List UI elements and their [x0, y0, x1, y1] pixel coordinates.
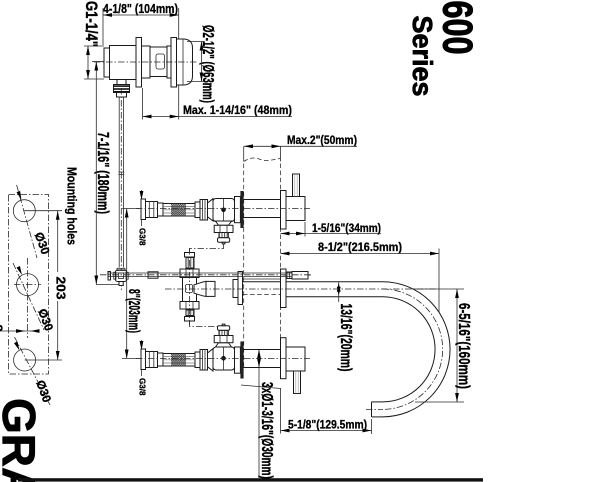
- svg-text:600: 600: [435, 1, 482, 55]
- svg-text:G3/8: G3/8: [138, 378, 148, 396]
- svg-text:8-1/2"(216.5mm): 8-1/2"(216.5mm): [318, 242, 402, 254]
- svg-text:G1-1/4": G1-1/4": [82, 1, 99, 47]
- svg-text:8"(203mm): 8"(203mm): [125, 289, 142, 333]
- svg-text:Max.2"(50mm): Max.2"(50mm): [287, 135, 357, 147]
- svg-text:6-5/16"(160mm): 6-5/16"(160mm): [455, 303, 472, 389]
- svg-text:8: 8: [0, 325, 5, 332]
- svg-text:4-1/8" (104mm): 4-1/8" (104mm): [103, 1, 178, 16]
- svg-text:G3/8: G3/8: [138, 228, 148, 246]
- svg-text:GRAFF: GRAFF: [0, 398, 45, 482]
- svg-text:Series: Series: [406, 16, 436, 97]
- svg-text:203: 203: [54, 277, 68, 300]
- svg-text:Mounting holes: Mounting holes: [65, 167, 80, 245]
- svg-text:1-5/16"(34mm): 1-5/16"(34mm): [312, 223, 381, 235]
- svg-text:Max. 1-14/16" (48mm): Max. 1-14/16" (48mm): [183, 103, 292, 117]
- svg-text:3xØ1-3/16"(Ø30mm): 3xØ1-3/16"(Ø30mm): [258, 382, 275, 479]
- svg-text:13/16"(20mm): 13/16"(20mm): [337, 304, 354, 372]
- svg-text:5-1/8"(129.5mm): 5-1/8"(129.5mm): [288, 420, 367, 432]
